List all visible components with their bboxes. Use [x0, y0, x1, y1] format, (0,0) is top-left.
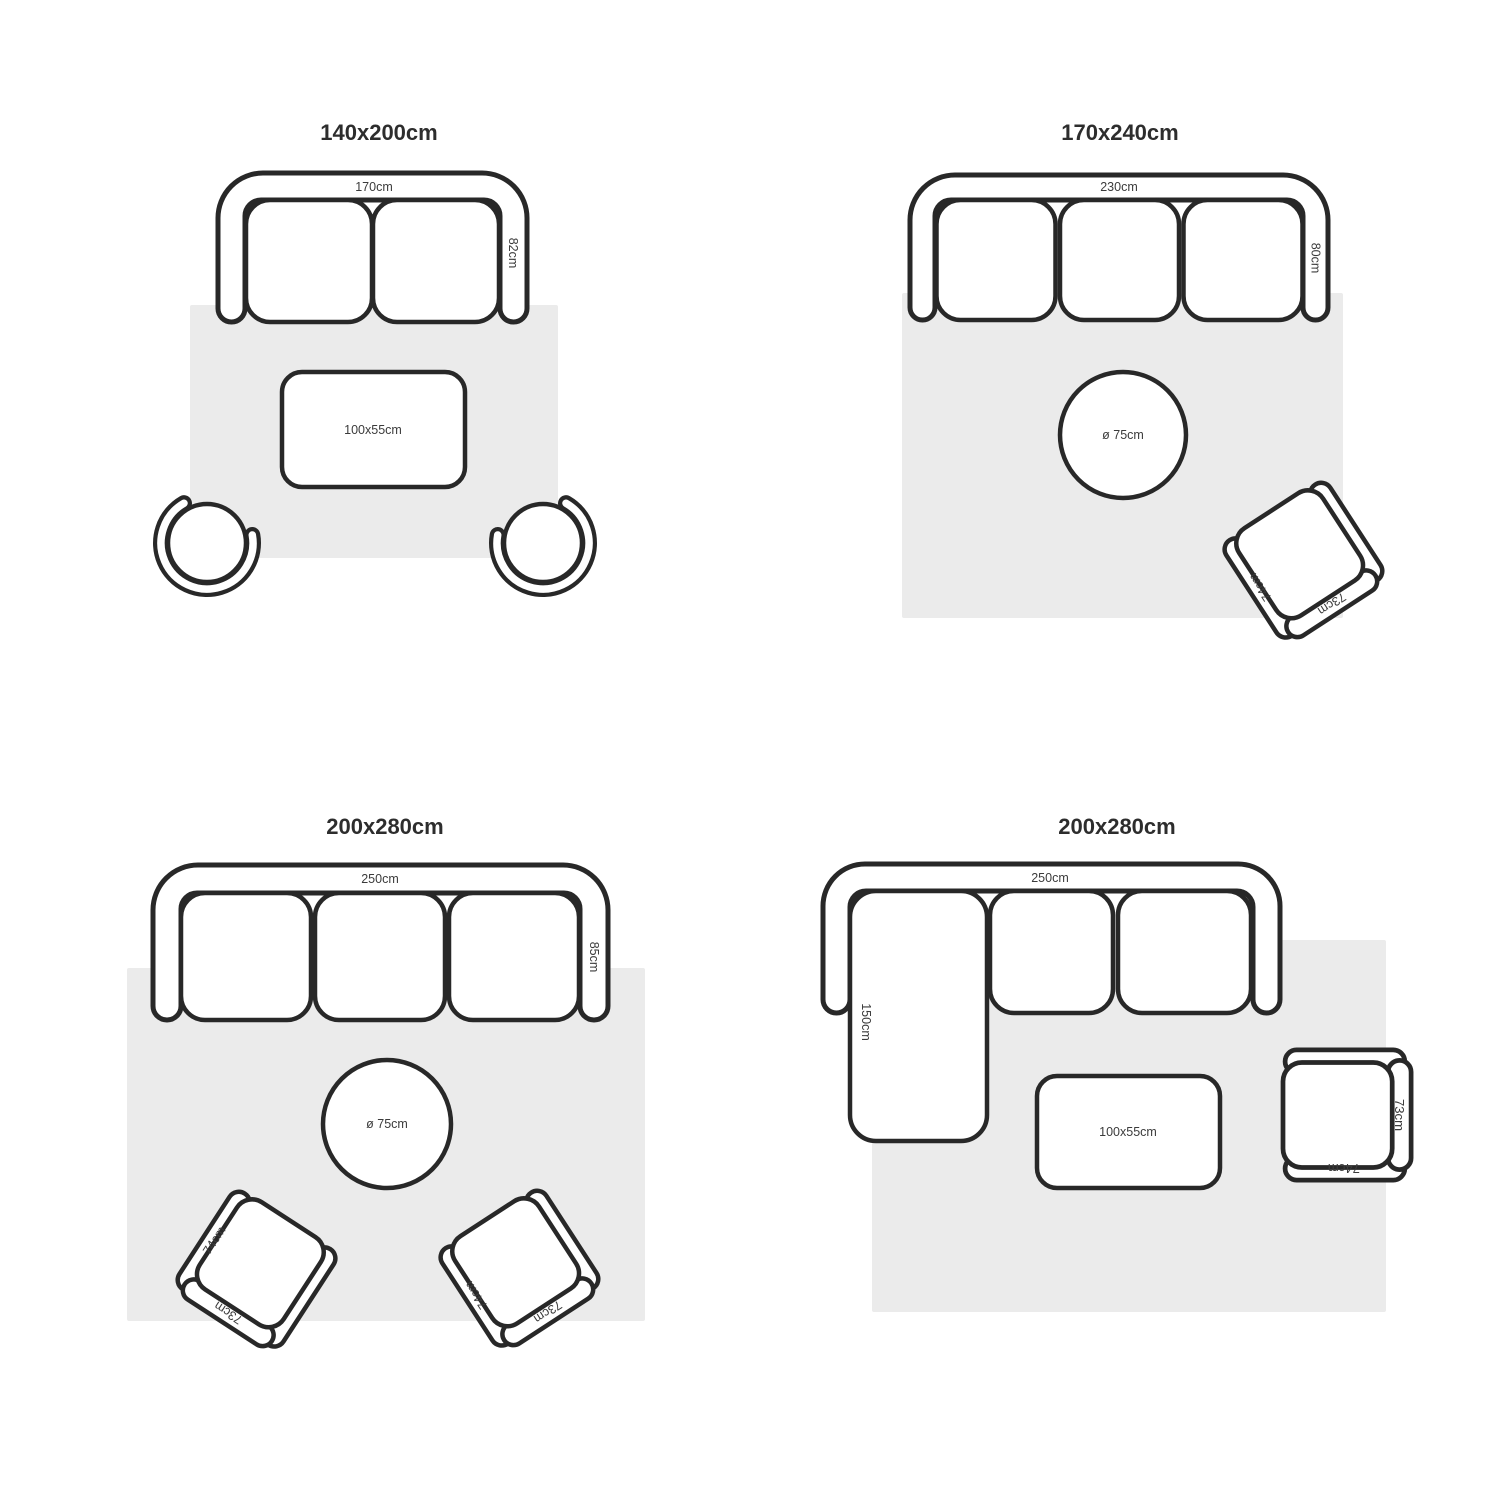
sofa-cushion: [1060, 200, 1179, 320]
sofa-width-dimension: 250cm: [1031, 871, 1069, 885]
armchair-back-dimension: 73cm: [1392, 1099, 1407, 1131]
rug-size-title: 200x280cm: [1058, 814, 1175, 839]
rug-size-title: 140x200cm: [320, 120, 437, 145]
armchair-arm-dimension: 74cm: [1328, 1161, 1360, 1176]
sofa-cushion: [246, 200, 372, 322]
rug-size-title: 200x280cm: [326, 814, 443, 839]
coffee-table-dimension: 100x55cm: [1099, 1125, 1157, 1139]
sofa-width-dimension: 230cm: [1100, 180, 1138, 194]
sofa-cushion: [373, 200, 499, 322]
sofa-cushion: [315, 893, 445, 1020]
layout-140x200: 140x200cm 170cm 82cm 100x55cm: [0, 0, 750, 750]
side-table-dimension: ø 75cm: [1102, 428, 1144, 442]
armchair: 74cm 73cm: [1283, 1050, 1411, 1180]
sofa-cushion: [181, 893, 311, 1020]
armchair-seat: [1283, 1063, 1392, 1168]
sofa-width-dimension: 250cm: [361, 872, 399, 886]
layout-200x280-b: 200x280cm 250cm 150cm 100x55cm 74cm 73cm: [750, 750, 1500, 1500]
sofa-depth-dimension: 85cm: [587, 942, 601, 973]
tub-chair-seat: [168, 504, 246, 582]
sofa-cushion: [1184, 200, 1303, 320]
sofa-width-dimension: 170cm: [355, 180, 393, 194]
side-table-dimension: ø 75cm: [366, 1117, 408, 1131]
chaise-length-dimension: 150cm: [859, 1003, 873, 1041]
rug-size-title: 170x240cm: [1061, 120, 1178, 145]
sofa-depth-dimension: 80cm: [1309, 243, 1323, 274]
sofa-depth-dimension: 82cm: [506, 238, 520, 269]
sofa-cushion: [449, 893, 579, 1020]
coffee-table-dimension: 100x55cm: [344, 423, 402, 437]
layout-170x240: 170x240cm 230cm 80cm ø 75cm 74cm 73cm: [750, 0, 1500, 750]
sofa-cushion: [937, 200, 1056, 320]
sofa-cushion: [1118, 891, 1251, 1013]
layout-200x280-a: 200x280cm 250cm 85cm ø 75cm 74cm 73cm 74…: [0, 750, 750, 1500]
sofa-cushion: [990, 891, 1113, 1013]
rug-size-guide: 140x200cm 170cm 82cm 100x55cm 170x240cm …: [0, 0, 1500, 1500]
